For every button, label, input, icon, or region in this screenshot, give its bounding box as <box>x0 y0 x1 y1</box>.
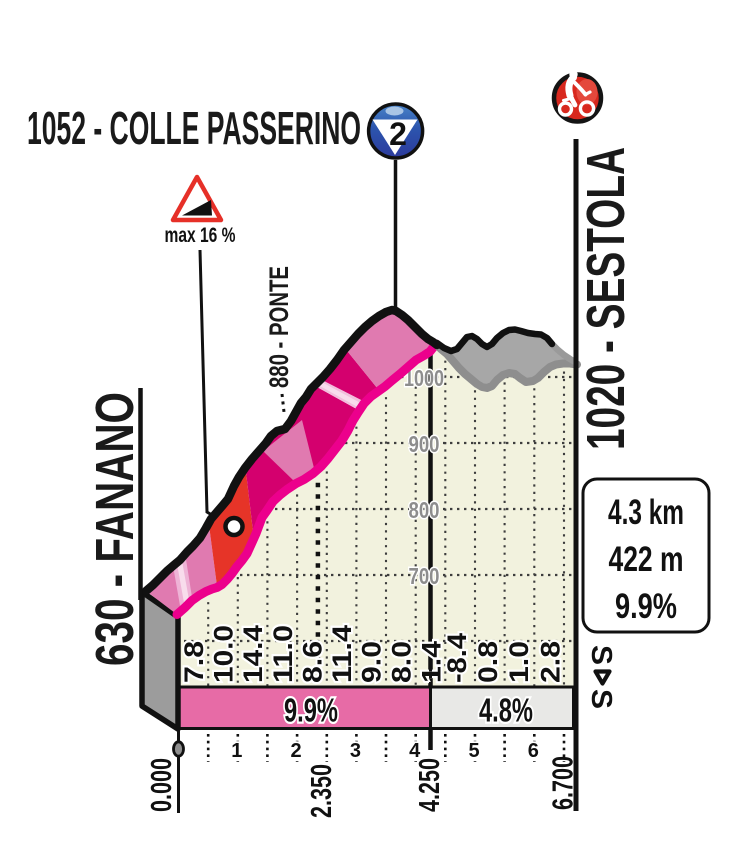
svg-text:1.0: 1.0 <box>504 641 534 683</box>
svg-text:900: 900 <box>409 431 440 457</box>
svg-text:-8.4: -8.4 <box>442 633 472 683</box>
svg-text:S: S <box>585 645 617 665</box>
svg-text:4.250: 4.250 <box>414 758 446 812</box>
svg-text:11.0: 11.0 <box>268 625 298 683</box>
svg-text:2.350: 2.350 <box>306 764 338 818</box>
svg-text:2: 2 <box>291 740 302 762</box>
svg-text:2: 2 <box>389 116 407 152</box>
svg-text:9.0: 9.0 <box>357 641 387 683</box>
svg-text:1052 - COLLE PASSERINO: 1052 - COLLE PASSERINO <box>27 102 361 154</box>
svg-text:8.0: 8.0 <box>386 641 416 683</box>
svg-text:14.4: 14.4 <box>238 625 268 683</box>
svg-text:3: 3 <box>350 740 361 762</box>
svg-text:1: 1 <box>231 740 242 762</box>
svg-text:422 m: 422 m <box>609 540 684 579</box>
svg-text:0.8: 0.8 <box>473 641 503 683</box>
svg-text:4.3 km: 4.3 km <box>608 493 684 532</box>
svg-text:9.9%: 9.9% <box>284 692 338 729</box>
svg-text:S: S <box>585 689 617 709</box>
svg-text:630 - FANANO: 630 - FANANO <box>85 392 145 666</box>
svg-text:10.0: 10.0 <box>209 625 239 683</box>
svg-text:6: 6 <box>528 740 539 762</box>
svg-text:4.8%: 4.8% <box>479 692 533 729</box>
svg-text:2.8: 2.8 <box>536 641 566 683</box>
svg-text:1020 - SESTOLA: 1020 - SESTOLA <box>576 147 636 450</box>
svg-text:6.700: 6.700 <box>548 756 580 810</box>
svg-text:700: 700 <box>409 563 440 589</box>
svg-text:800: 800 <box>409 497 440 523</box>
svg-text:11.4: 11.4 <box>327 625 357 683</box>
svg-text:5: 5 <box>468 740 479 762</box>
svg-text:880 - PONTE: 880 - PONTE <box>264 266 294 388</box>
svg-text:0.000: 0.000 <box>146 758 178 812</box>
svg-text:8.6: 8.6 <box>297 641 327 683</box>
svg-text:9.9%: 9.9% <box>615 587 677 626</box>
svg-text:max 16 %: max 16 % <box>165 223 236 247</box>
svg-text:7.8: 7.8 <box>179 641 209 683</box>
